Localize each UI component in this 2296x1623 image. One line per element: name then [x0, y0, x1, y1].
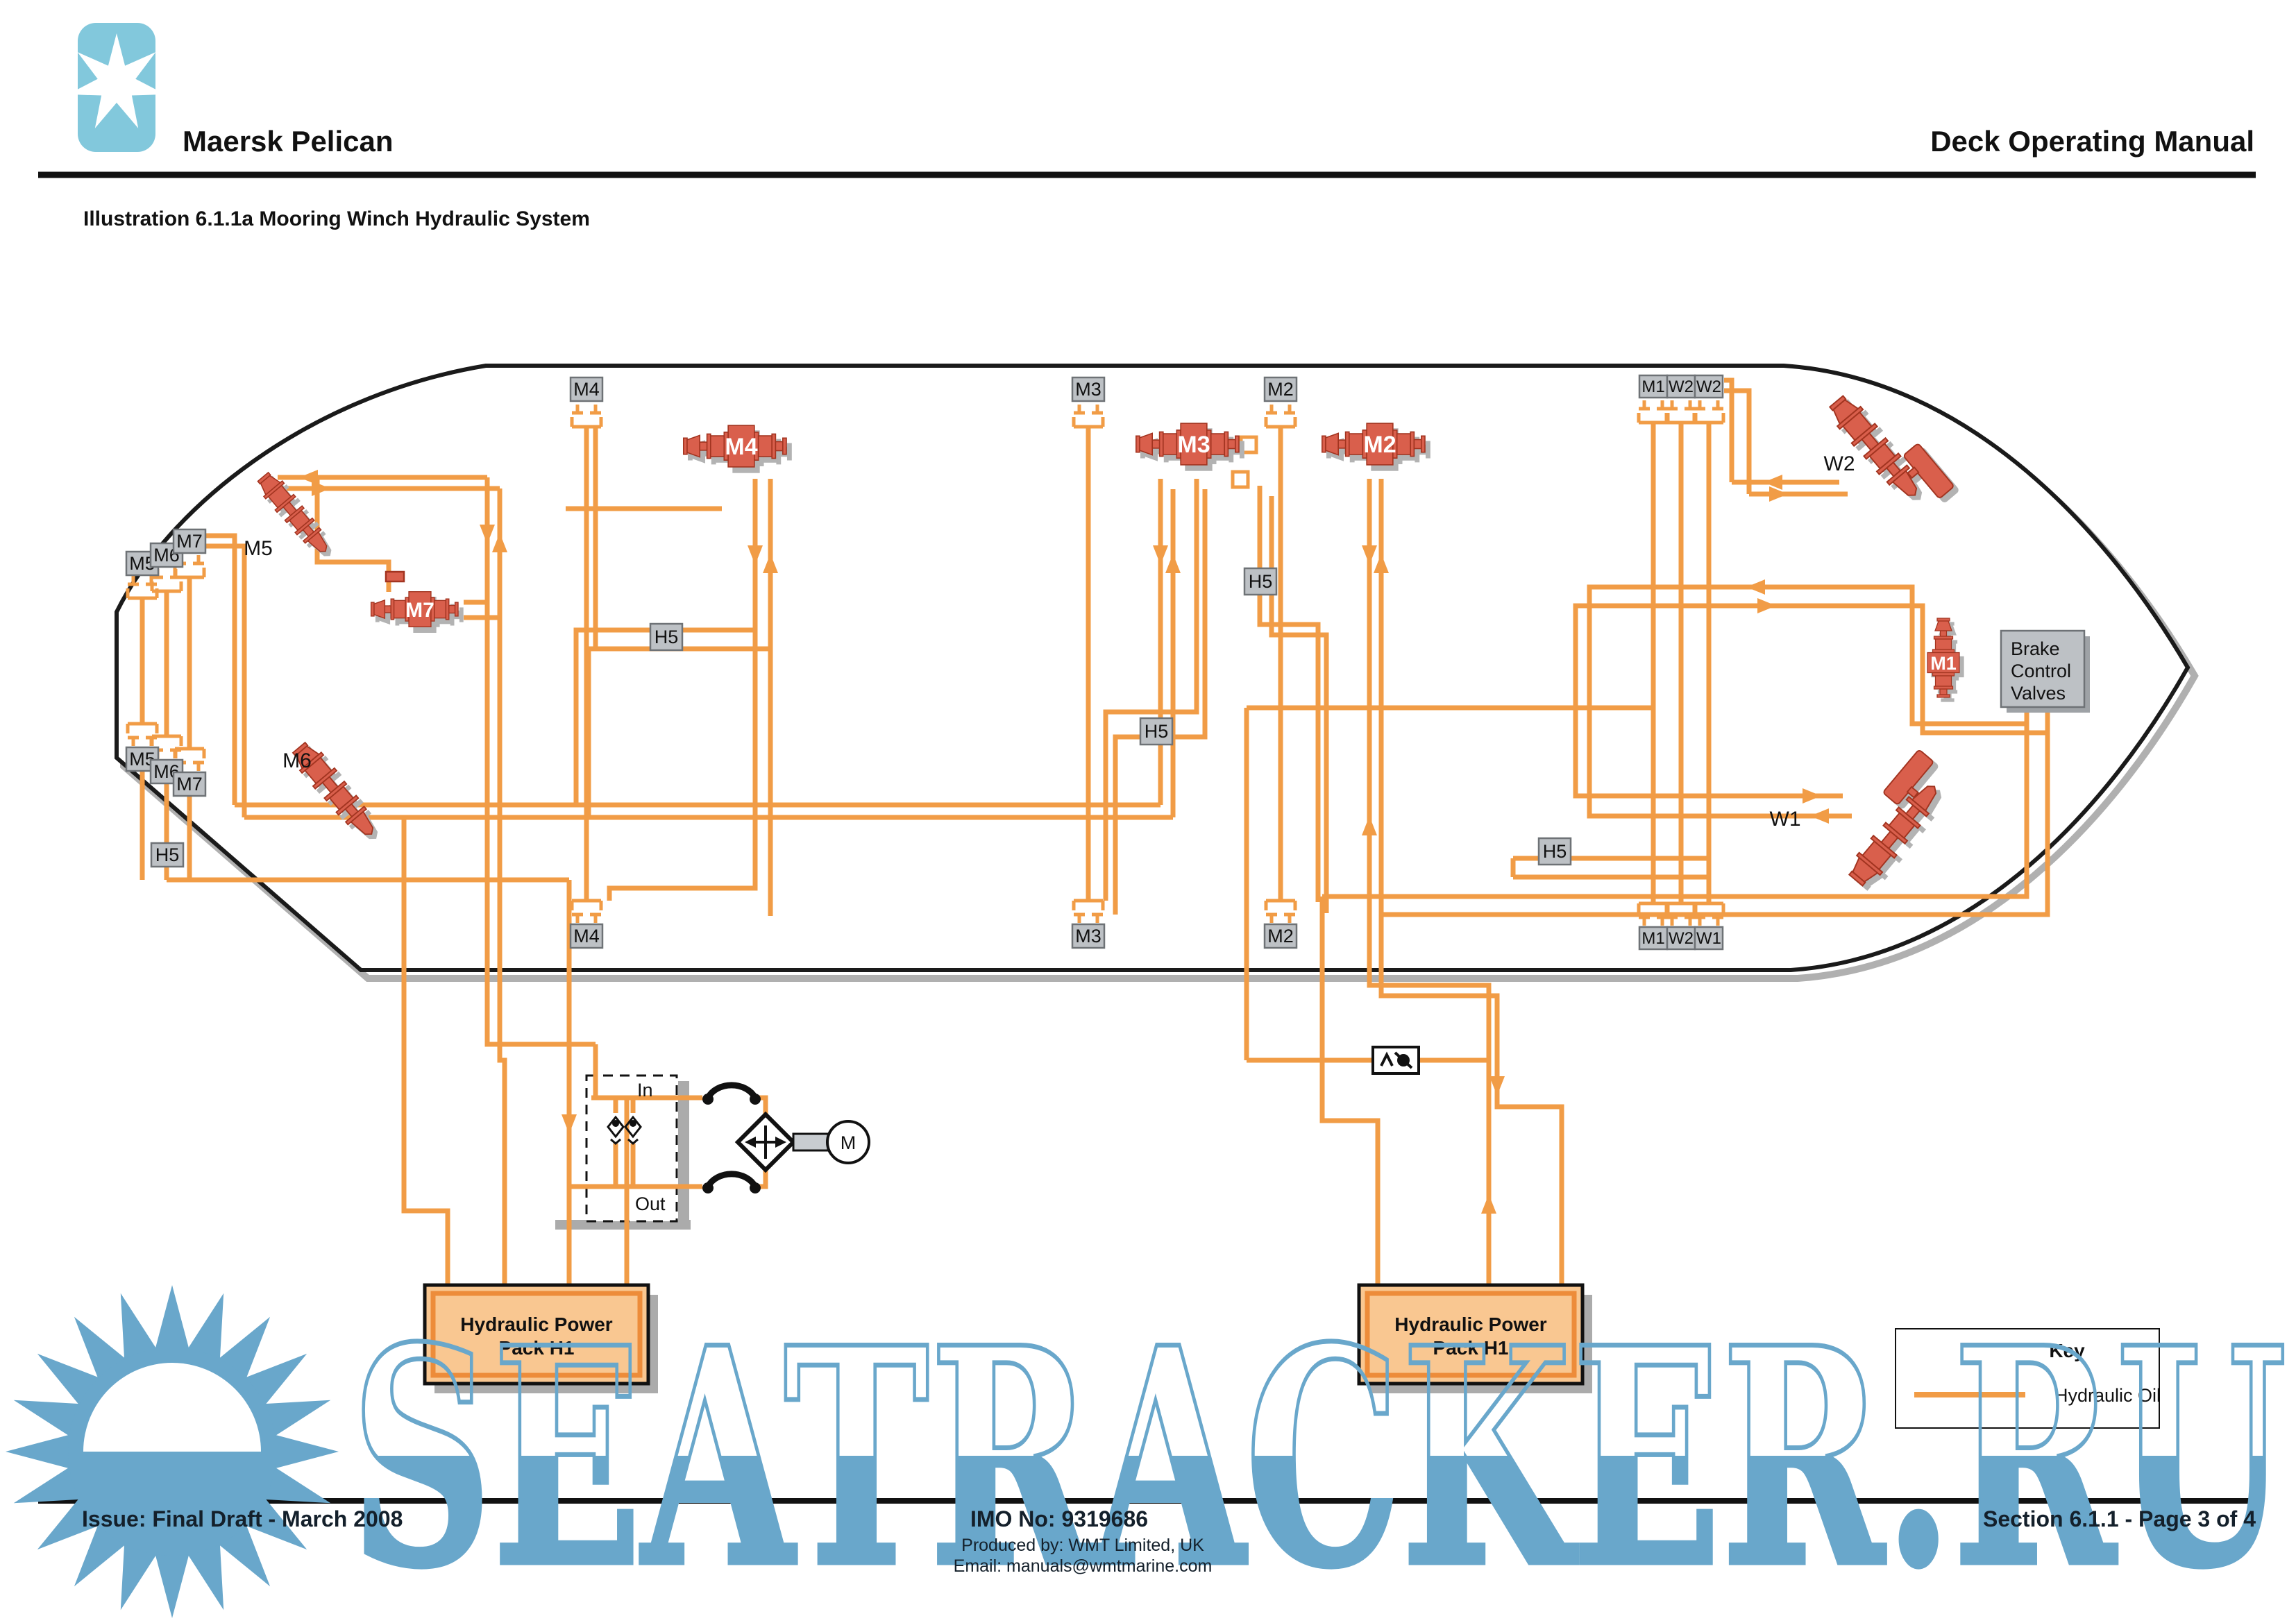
manual-page: Maersk Pelican Deck Operating Manual Ill…: [0, 0, 2296, 1623]
svg-text:M7: M7: [176, 774, 203, 794]
svg-text:M2: M2: [1267, 926, 1294, 946]
pipe-label-h5-left: H5: [151, 843, 183, 867]
svg-text:M7: M7: [176, 531, 203, 552]
coupler-icon: [738, 1114, 793, 1170]
pipe-label-w2b-top: W2: [1695, 375, 1723, 398]
pipe-label-m2-top: M2: [1265, 377, 1297, 401]
svg-text:M4: M4: [725, 434, 757, 460]
footer-imo: IMO No: 9319686: [970, 1506, 1148, 1531]
pump-box-shadow-right: [678, 1081, 689, 1224]
svg-text:W2: W2: [1669, 377, 1694, 396]
ship-name: Maersk Pelican: [183, 125, 394, 158]
pipe-label-m7-top: M7: [174, 529, 205, 553]
svg-text:W1: W1: [1770, 808, 1801, 831]
svg-text:M4: M4: [573, 379, 600, 400]
non-return-valve: [1373, 1047, 1419, 1073]
svg-text:M7: M7: [405, 599, 434, 622]
pipe-label-h5-m4: H5: [650, 624, 682, 650]
footer-section-page: Section 6.1.1 - Page 3 of 4: [1983, 1506, 2256, 1531]
svg-text:M1: M1: [1930, 653, 1957, 674]
footer-email: Email: manuals@wmtmarine.com: [954, 1556, 1213, 1576]
footer-produced-by: Produced by: WMT Limited, UK: [961, 1536, 1204, 1555]
emergency-pump-symbols: In Out M: [608, 1047, 1419, 1214]
pipe-label-m2-bottom: M2: [1265, 924, 1297, 948]
svg-text:M1: M1: [1641, 929, 1664, 948]
hose-arc-icon: [708, 1174, 755, 1187]
mooring-winch-hydraulic-diagram: Maersk Pelican Deck Operating Manual Ill…: [0, 0, 2296, 1623]
illustration-caption: Illustration 6.1.1a Mooring Winch Hydrau…: [83, 207, 590, 230]
svg-text:W2: W2: [1824, 452, 1855, 475]
svg-text:M1: M1: [1641, 377, 1664, 396]
svg-text:Brake: Brake: [2011, 638, 2060, 659]
pipe-label-m3-top: M3: [1072, 377, 1104, 401]
pipe-label-h5-m3: H5: [1140, 718, 1172, 745]
svg-text:W2: W2: [1669, 929, 1694, 948]
pipe-label-w1-bottom: W1: [1695, 927, 1723, 949]
hose-arc-icon: [708, 1085, 755, 1098]
brake-control-valves: Brake Control Valves: [2001, 631, 2090, 713]
pipe-label-w2a-top: W2: [1667, 375, 1695, 398]
in-label: In: [637, 1080, 653, 1101]
motor-label: M: [841, 1132, 856, 1153]
pipe-label-m3-bottom: M3: [1072, 924, 1104, 948]
svg-text:Control: Control: [2011, 661, 2071, 681]
svg-text:H5: H5: [1145, 721, 1169, 742]
svg-text:H5: H5: [655, 627, 679, 647]
svg-text:M3: M3: [1075, 926, 1101, 946]
footer-issue: Issue: Final Draft - March 2008: [82, 1506, 403, 1531]
svg-text:M4: M4: [573, 926, 600, 946]
pipe-label-h5-m2: H5: [1244, 568, 1276, 595]
header: Maersk Pelican Deck Operating Manual Ill…: [38, 23, 2256, 230]
pipe-label-m4-bottom: M4: [571, 924, 602, 948]
svg-text:W1: W1: [1696, 929, 1721, 948]
pipe-label-m7-bottom: M7: [174, 772, 205, 796]
svg-text:H5: H5: [155, 844, 180, 865]
svg-text:H5: H5: [1543, 841, 1567, 862]
motor-shaft: [793, 1134, 828, 1150]
pipe-label-w2-bottom: W2: [1667, 927, 1695, 949]
watermark-sun-icon: [6, 1285, 339, 1618]
pipe-label-m1-top: M1: [1639, 375, 1667, 398]
svg-text:W2: W2: [1696, 377, 1721, 396]
svg-text:M5: M5: [244, 537, 273, 560]
svg-text:M3: M3: [1177, 432, 1210, 458]
svg-text:H5: H5: [1249, 571, 1273, 592]
svg-text:Valves: Valves: [2011, 683, 2066, 704]
svg-text:M3: M3: [1075, 379, 1101, 400]
out-label: Out: [635, 1193, 666, 1214]
pipe-label-m1-bottom: M1: [1639, 927, 1667, 949]
pipe-label-m4-top: M4: [571, 377, 602, 401]
svg-text:M6: M6: [282, 749, 312, 772]
svg-text:M2: M2: [1363, 432, 1396, 458]
pipe-label-h5-right: H5: [1539, 838, 1571, 865]
manual-title: Deck Operating Manual: [1930, 125, 2254, 158]
svg-text:M2: M2: [1267, 379, 1294, 400]
